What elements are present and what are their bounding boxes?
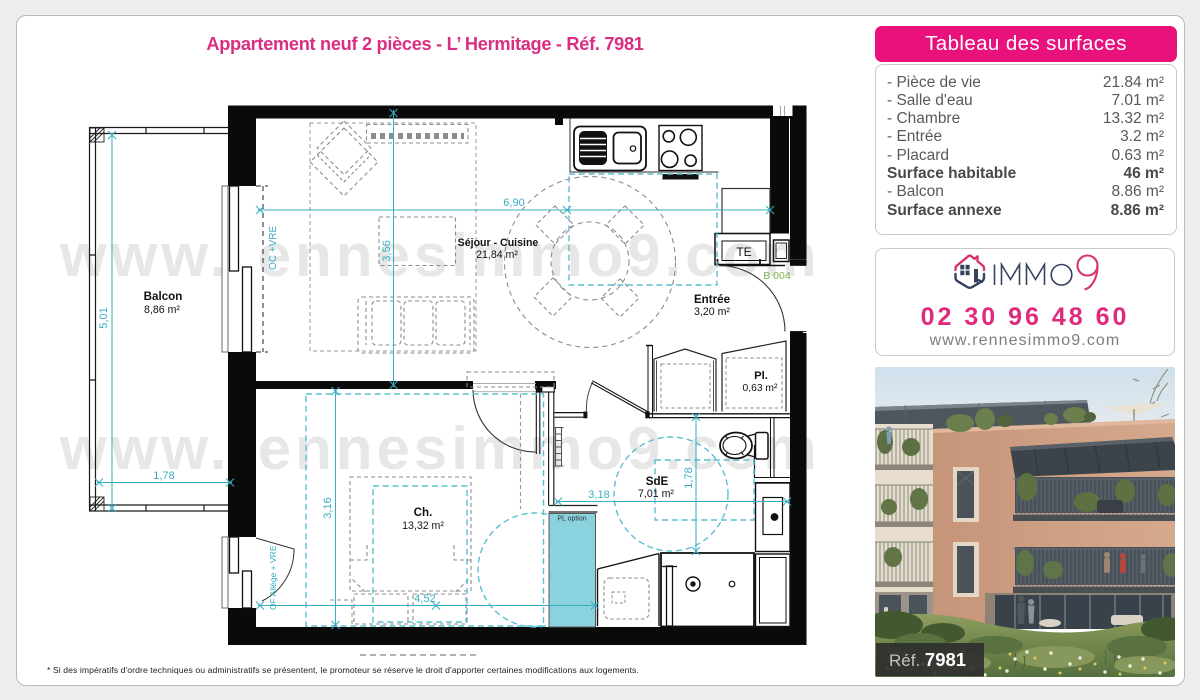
svg-text:Réf. 7981: Réf. 7981: [889, 649, 966, 670]
svg-text:7,01 m²: 7,01 m²: [638, 488, 674, 500]
svg-text:1,78: 1,78: [153, 470, 174, 482]
svg-text:3,18: 3,18: [588, 489, 609, 501]
svg-text:SdE: SdE: [646, 475, 669, 488]
svg-text:8,86 m²: 8,86 m²: [144, 304, 180, 316]
svg-text:Ch.: Ch.: [414, 506, 433, 519]
svg-text:B 004: B 004: [763, 270, 791, 282]
svg-text:21,84 m²: 21,84 m²: [476, 249, 518, 261]
svg-text:4,52: 4,52: [414, 593, 435, 605]
svg-text:Entrée: Entrée: [694, 293, 731, 306]
svg-text:5,01: 5,01: [98, 307, 110, 328]
svg-text:Pl.: Pl.: [754, 370, 768, 382]
svg-text:6,90: 6,90: [503, 197, 524, 209]
svg-text:3,56: 3,56: [381, 240, 393, 261]
svg-text:OC +VRE: OC +VRE: [268, 225, 279, 270]
svg-text:www.rennesimmo9.com: www.rennesimmo9.com: [59, 222, 821, 289]
svg-text:1,78: 1,78: [683, 467, 695, 488]
svg-text:OF Allège + VRE: OF Allège + VRE: [268, 545, 278, 610]
svg-text:Balcon: Balcon: [144, 290, 183, 303]
svg-text:3,16: 3,16: [322, 497, 334, 518]
svg-text:0,63 m²: 0,63 m²: [743, 383, 778, 394]
svg-text:Séjour - Cuisine: Séjour - Cuisine: [458, 237, 539, 249]
svg-text:13,32 m²: 13,32 m²: [402, 520, 444, 532]
svg-text:TE: TE: [736, 245, 751, 259]
svg-text:PL option: PL option: [557, 516, 586, 523]
svg-text:3,20 m²: 3,20 m²: [694, 306, 730, 318]
